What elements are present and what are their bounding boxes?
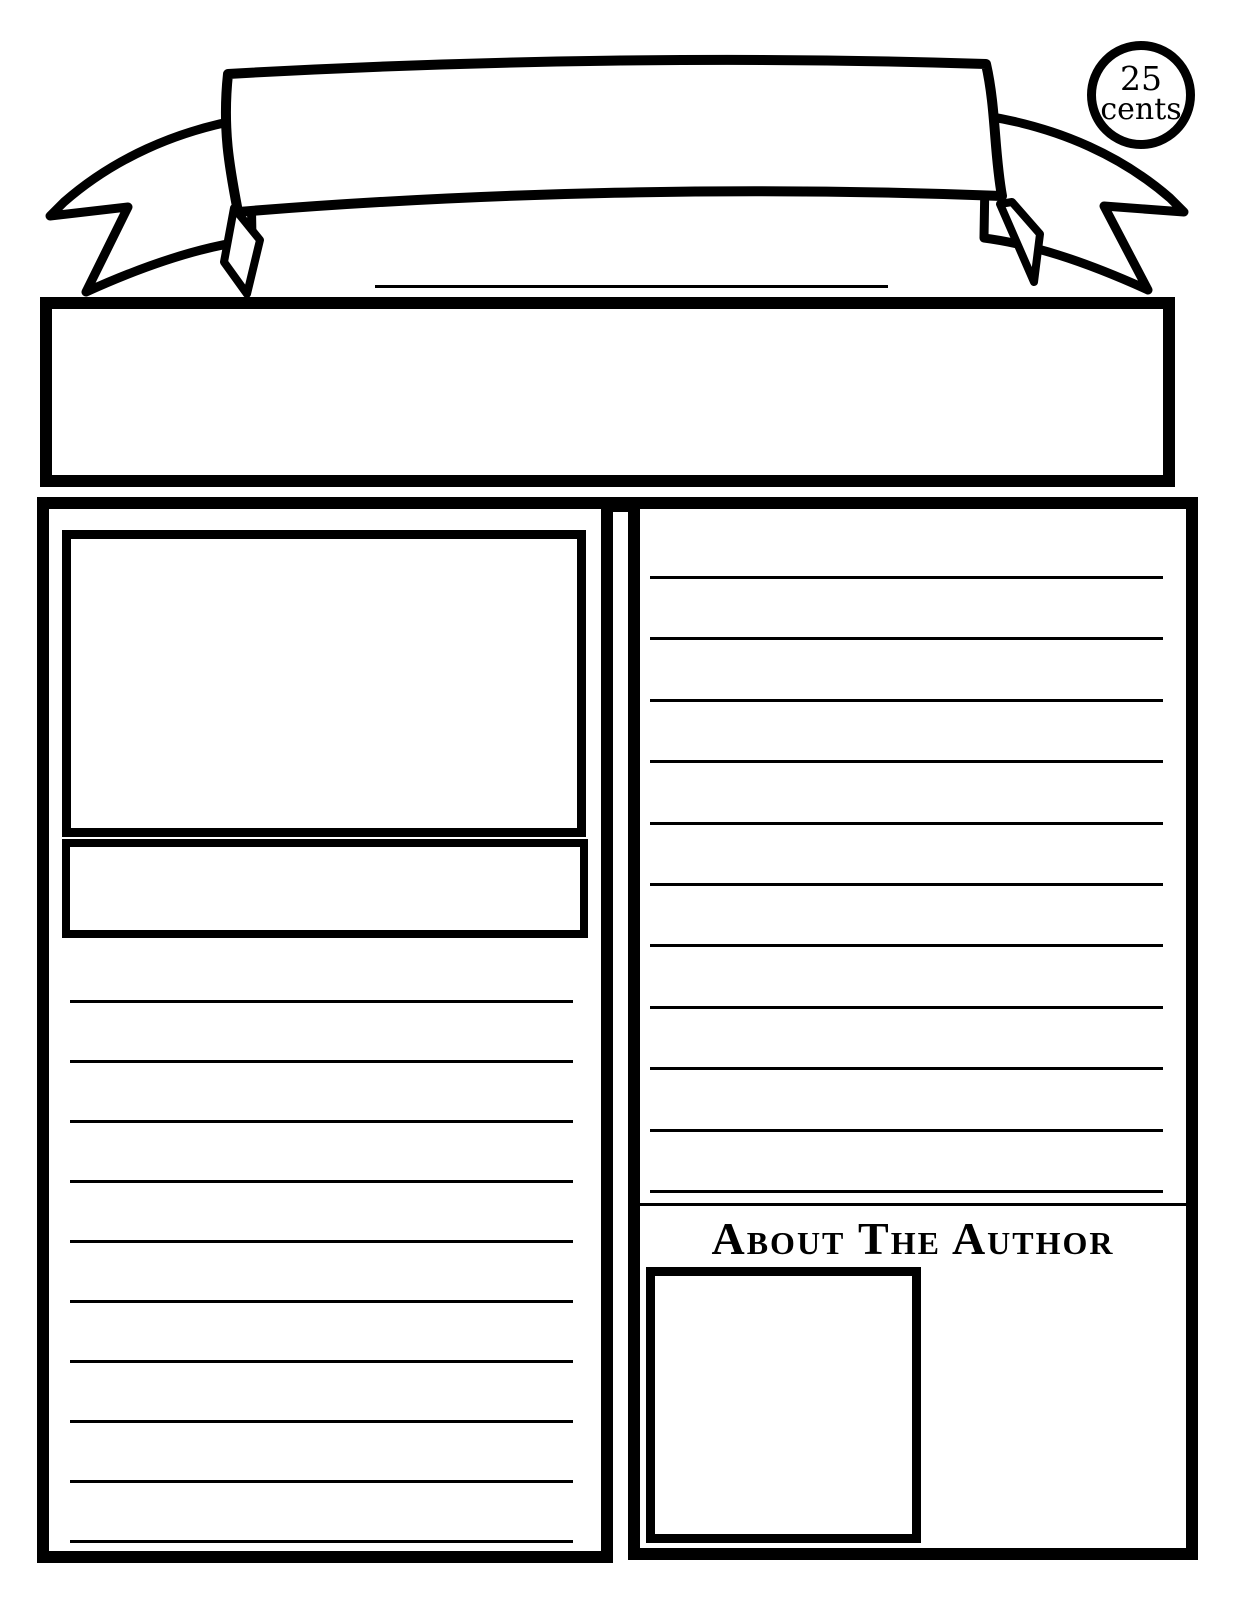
ruled-line [650, 944, 1163, 947]
price-seal: 25 cents [1087, 41, 1195, 149]
left-ruled-lines [70, 1000, 573, 1543]
newspaper-template-page: 25 cents About The Author [0, 0, 1236, 1600]
right-ruled-lines [650, 576, 1163, 1193]
author-photo-box [646, 1267, 921, 1543]
date-blank-line [375, 285, 888, 288]
ruled-line [650, 1190, 1163, 1193]
caption-box [62, 839, 588, 938]
left-column [37, 497, 613, 1563]
right-column: About The Author [628, 497, 1198, 1560]
masthead-ribbon-banner [0, 0, 1236, 340]
about-section-divider [640, 1203, 1186, 1206]
ribbon-left-tail [50, 118, 252, 292]
ruled-line [70, 1060, 573, 1063]
about-the-author-heading: About The Author [640, 1213, 1186, 1265]
ruled-line [70, 1000, 573, 1003]
ruled-line [650, 1006, 1163, 1009]
price-unit: cents [1100, 94, 1181, 126]
headline-box [40, 297, 1175, 487]
photo-box [62, 530, 586, 837]
ruled-line [70, 1420, 573, 1423]
ruled-line [650, 699, 1163, 702]
price-amount: 25 [1120, 64, 1162, 94]
ruled-line [650, 1129, 1163, 1132]
ruled-line [70, 1180, 573, 1183]
ruled-line [650, 760, 1163, 763]
ruled-line [70, 1540, 573, 1543]
ruled-line [70, 1300, 573, 1303]
ruled-line [70, 1240, 573, 1243]
ruled-line [650, 883, 1163, 886]
ribbon-band-title-blank [226, 60, 1002, 212]
ruled-line [650, 822, 1163, 825]
ruled-line [70, 1120, 573, 1123]
ruled-line [70, 1360, 573, 1363]
ruled-line [650, 576, 1163, 579]
ruled-line [650, 637, 1163, 640]
ruled-line [70, 1480, 573, 1483]
ruled-line [650, 1067, 1163, 1070]
